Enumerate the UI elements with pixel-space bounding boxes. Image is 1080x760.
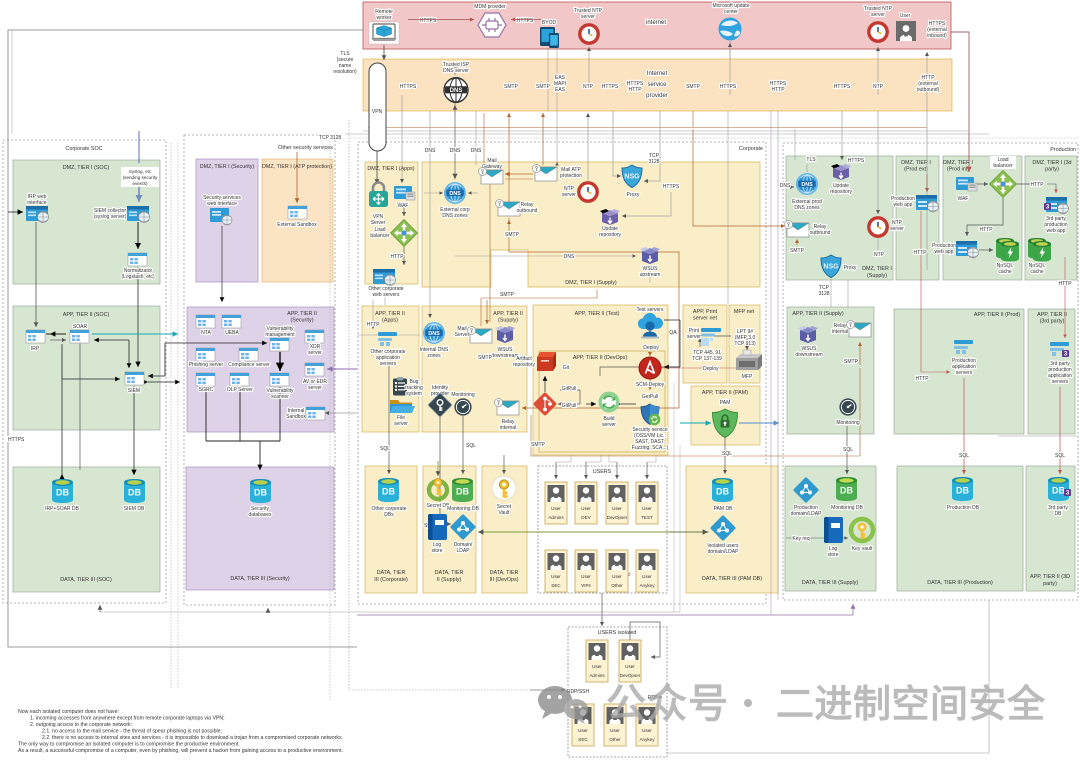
svg-text:GetPull: GetPull	[642, 394, 658, 400]
svg-text:service: service	[647, 82, 667, 88]
svg-text:(Supply): (Supply)	[867, 273, 887, 279]
svg-text:APP, TIER II (Supply): APP, TIER II (Supply)	[792, 311, 844, 317]
svg-text:Monitoring DB: Monitoring DB	[831, 505, 863, 511]
svg-text:(Prod int): (Prod int)	[947, 167, 969, 173]
svg-text:Now each isolated computer doe: Now each isolated computer does not have…	[18, 709, 119, 715]
svg-text:DNS zones: DNS zones	[794, 205, 820, 211]
svg-text:DMZ, TIER I (Security): DMZ, TIER I (Security)	[200, 164, 255, 170]
svg-text:HTTPS: HTTPS	[8, 437, 25, 443]
svg-text:HTTPS: HTTPS	[834, 84, 851, 90]
svg-text:VPN: VPN	[372, 109, 383, 115]
svg-text:Other: Other	[611, 583, 623, 588]
svg-text:protection: protection	[560, 173, 582, 179]
svg-text:SQL: SQL	[1055, 453, 1065, 459]
svg-text:Git: Git	[563, 365, 570, 371]
svg-text:PAM DB: PAM DB	[714, 506, 733, 512]
svg-text:APP, TIER II: APP, TIER II	[493, 311, 523, 317]
svg-text:TCP 3128: TCP 3128	[319, 135, 342, 141]
svg-text:External Sandbox: External Sandbox	[277, 222, 317, 228]
svg-text:3128: 3128	[818, 291, 829, 297]
svg-text:APP, TIER II: APP, TIER II	[1037, 312, 1067, 318]
svg-text:DATA, TIER III (Production): DATA, TIER III (Production)	[927, 580, 993, 586]
svg-text:server: server	[308, 350, 322, 356]
svg-text:Deploy: Deploy	[643, 345, 659, 351]
svg-text:party): party)	[1043, 581, 1057, 587]
svg-text:DNS: DNS	[450, 148, 461, 154]
svg-text:UEBA: UEBA	[225, 330, 239, 336]
svg-text:HTTPS: HTTPS	[420, 18, 437, 24]
svg-text:Syslog, etc: Syslog, etc	[129, 169, 152, 174]
svg-text:SMTP: SMTP	[500, 292, 515, 298]
svg-text:QA: QA	[669, 330, 677, 336]
svg-text:DATA, TIER III (SOC): DATA, TIER III (SOC)	[60, 577, 112, 583]
svg-text:SQL: SQL	[843, 447, 853, 453]
svg-text:worker: worker	[376, 15, 391, 21]
svg-text:downstream: downstream	[795, 352, 822, 358]
svg-text:Admins: Admins	[548, 515, 564, 520]
svg-text:DMZ, TIER I: DMZ, TIER I	[862, 266, 892, 272]
svg-text:HTTPS: HTTPS	[602, 84, 619, 90]
svg-text:DNS: DNS	[780, 183, 791, 189]
svg-text:VIPs: VIPs	[581, 583, 591, 588]
svg-text:User: User	[900, 13, 911, 19]
svg-text:Monitoring: Monitoring	[451, 392, 475, 398]
svg-text:Monitoring: Monitoring	[836, 420, 860, 426]
svg-text:DATA, TIER: DATA, TIER	[377, 570, 406, 576]
svg-text:LDAP: LDAP	[456, 548, 470, 554]
svg-text:HTTP: HTTP	[913, 250, 927, 256]
svg-text:Test servers: Test servers	[637, 307, 664, 313]
svg-text:III (DevOps): III (DevOps)	[489, 577, 518, 583]
svg-text:DMZ, TIER I (SOC): DMZ, TIER I (SOC)	[63, 165, 110, 171]
svg-text:SMTP: SMTP	[790, 248, 805, 254]
svg-text:domain/LDAP: domain/LDAP	[791, 511, 823, 517]
svg-text:Production DB: Production DB	[947, 505, 980, 511]
svg-text:NTP: NTP	[874, 252, 885, 258]
svg-text:repository: repository	[830, 189, 852, 195]
svg-text:User: User	[578, 728, 588, 733]
svg-text:DNS: DNS	[564, 254, 575, 260]
svg-text:Key vault: Key vault	[852, 546, 873, 552]
svg-text:DLP Server: DLP Server	[227, 387, 253, 393]
svg-text:User: User	[551, 506, 561, 511]
svg-text:SMTP: SMTP	[504, 84, 519, 90]
svg-text:Proxy: Proxy	[844, 265, 857, 271]
svg-text:SQL: SQL	[380, 446, 390, 452]
svg-text:HTTP: HTTP	[915, 376, 929, 382]
svg-text:HTTPS: HTTPS	[720, 84, 737, 90]
svg-text:server: server	[602, 422, 616, 428]
svg-text:USERS: USERS	[593, 469, 612, 475]
svg-text:User: User	[612, 574, 622, 579]
svg-text:DMZ, TIER I: DMZ, TIER I	[943, 160, 973, 166]
svg-text:APP, TIER II (Prod): APP, TIER II (Prod)	[974, 312, 1020, 318]
svg-text:SMTP: SMTP	[478, 355, 493, 361]
svg-text:(Apps): (Apps)	[382, 318, 398, 324]
svg-text:Compliance server: Compliance server	[228, 362, 270, 368]
svg-text:SIEM: SIEM	[128, 388, 140, 394]
svg-text:server: server	[308, 385, 322, 391]
svg-text:TCP 137-139: TCP 137-139	[692, 356, 722, 362]
svg-text:HTTPS: HTTPS	[663, 184, 680, 190]
svg-text:DATA, TIER: DATA, TIER	[435, 570, 464, 576]
svg-text:User: User	[612, 506, 622, 511]
svg-text:servers: servers	[1052, 379, 1069, 385]
svg-text:SQL: SQL	[959, 453, 969, 459]
svg-text:TCP 913): TCP 913)	[734, 341, 756, 347]
svg-text:resolution): resolution)	[333, 69, 357, 75]
svg-text:SMTP: SMTP	[531, 442, 546, 448]
svg-text:APP, TIER II (Test): APP, TIER II (Test)	[575, 311, 620, 317]
svg-text:SMTP: SMTP	[536, 84, 551, 90]
svg-text:APP, TIER II (3D: APP, TIER II (3D	[1030, 574, 1070, 580]
svg-text:(Supply): (Supply)	[498, 318, 518, 324]
svg-text:(sending security: (sending security	[123, 175, 158, 180]
svg-text:Server: Server	[371, 220, 386, 226]
svg-text:SMTP: SMTP	[844, 359, 859, 365]
svg-text:management: management	[265, 332, 295, 338]
svg-text:DATA, TIER: DATA, TIER	[490, 570, 519, 576]
svg-text:Admins: Admins	[589, 673, 605, 678]
svg-text:web app: web app	[894, 202, 913, 208]
svg-text:Other: Other	[609, 737, 621, 742]
svg-text:system: system	[406, 391, 422, 397]
svg-text:APP, TIER II (PAM): APP, TIER II (PAM)	[702, 390, 748, 396]
svg-text:repository: repository	[513, 362, 535, 368]
svg-text:HTTP: HTTP	[390, 254, 404, 260]
svg-text:GitPull: GitPull	[562, 386, 577, 392]
svg-text:BYOD: BYOD	[542, 20, 557, 26]
svg-text:2.1. no access to the mail ser: 2.1. no access to the mail service - the…	[42, 729, 222, 735]
svg-text:outbound): outbound)	[917, 87, 940, 93]
svg-text:DNS: DNS	[471, 148, 482, 154]
svg-text:web app: web app	[935, 249, 954, 255]
svg-text:APP, TIER II: APP, TIER II	[287, 311, 317, 317]
svg-text:cache: cache	[998, 269, 1012, 275]
svg-text:internet: internet	[646, 20, 666, 26]
svg-text:Deploy: Deploy	[703, 366, 719, 372]
svg-text:User: User	[625, 664, 635, 669]
svg-text:APP, Print: APP, Print	[693, 309, 718, 315]
svg-text:User: User	[592, 664, 602, 669]
svg-text:web app: web app	[1047, 228, 1066, 234]
svg-text:MDM provider: MDM provider	[474, 4, 506, 10]
svg-text:DNS server: DNS server	[443, 68, 469, 74]
svg-text:HTTPS: HTTPS	[517, 18, 534, 24]
svg-text:User: User	[610, 728, 620, 733]
svg-text:cache: cache	[1030, 269, 1044, 275]
svg-text:User: User	[581, 506, 591, 511]
svg-text:APP, TIER II: APP, TIER II	[375, 311, 405, 317]
svg-text:User: User	[642, 574, 652, 579]
svg-text:HTTP: HTTP	[1030, 182, 1044, 188]
svg-text:server: server	[394, 421, 408, 427]
svg-text:EAS: EAS	[555, 87, 566, 93]
svg-text:3128: 3128	[648, 159, 659, 165]
svg-text:HTTPS: HTTPS	[400, 84, 417, 90]
svg-text:repository: repository	[599, 232, 621, 238]
svg-text:APP, TIER II (SOC): APP, TIER II (SOC)	[63, 312, 110, 318]
svg-text:SEC: SEC	[578, 737, 588, 742]
svg-text:downstream: downstream	[491, 353, 518, 359]
svg-text:domain/LDAP: domain/LDAP	[708, 549, 740, 555]
svg-text:HTTPS: HTTPS	[848, 158, 865, 164]
svg-text:DMZ, TIER I (3d: DMZ, TIER I (3d	[1032, 160, 1071, 166]
svg-text:Corporate SOC: Corporate SOC	[65, 146, 102, 152]
svg-text:internal: internal	[500, 425, 516, 431]
svg-text:server: server	[562, 192, 576, 198]
svg-text:web servers: web servers	[373, 292, 400, 298]
svg-text:HTTP: HTTP	[771, 87, 785, 93]
svg-text:SMTP: SMTP	[686, 84, 701, 90]
svg-text:IRP: IRP	[31, 346, 40, 352]
svg-text:DMZ, TIER I (Apps): DMZ, TIER I (Apps)	[367, 166, 414, 172]
svg-text:Key req: Key req	[792, 536, 809, 542]
svg-text:USERS isolated: USERS isolated	[598, 630, 637, 636]
svg-text:TLS: TLS	[806, 157, 816, 163]
svg-text:1. incoming accesses from anyw: 1. incoming accesses from anywhere excep…	[30, 716, 225, 722]
svg-text:Other security services: Other security services	[278, 145, 333, 151]
svg-text:store: store	[431, 548, 442, 554]
svg-text:DATA, TIER III (Security): DATA, TIER III (Security)	[230, 576, 290, 582]
svg-text:NTP: NTP	[873, 84, 884, 90]
svg-text:Sandbox: Sandbox	[286, 414, 306, 420]
svg-text:DATA, TIER III (Supply): DATA, TIER III (Supply)	[802, 580, 859, 586]
svg-text:PAM: PAM	[720, 400, 730, 406]
svg-text:Monitoring DB: Monitoring DB	[447, 506, 479, 512]
svg-text:SGRC: SGRC	[199, 387, 214, 393]
svg-text:Anykey: Anykey	[639, 583, 655, 588]
svg-text:User: User	[581, 574, 591, 579]
svg-text:(Security): (Security)	[290, 318, 313, 324]
svg-text:Phishing server: Phishing server	[189, 362, 224, 368]
svg-text:Production: Production	[1050, 147, 1076, 153]
svg-text:(Prod ext): (Prod ext)	[904, 167, 928, 173]
svg-text:WAF: WAF	[958, 196, 969, 202]
svg-text:servers: servers	[956, 370, 973, 376]
svg-text:Proxy: Proxy	[627, 192, 640, 198]
svg-text:DATA, TIER III (PAM DB): DATA, TIER III (PAM DB)	[702, 576, 762, 582]
svg-text:User: User	[642, 506, 652, 511]
svg-text:2. outgoing access to the corp: 2. outgoing access to the corporate netw…	[30, 722, 132, 728]
svg-text:Internet: Internet	[647, 71, 668, 77]
svg-text:WAF: WAF	[398, 203, 409, 209]
svg-text:web interface: web interface	[207, 201, 237, 207]
svg-text:interface: interface	[27, 200, 46, 206]
svg-text:TEST: TEST	[641, 515, 653, 520]
svg-text:Server: Server	[455, 332, 470, 338]
svg-text:store: store	[827, 552, 838, 558]
svg-text:User: User	[642, 728, 652, 733]
svg-text:II (Supply): II (Supply)	[437, 577, 462, 583]
svg-text:Corporate: Corporate	[739, 146, 763, 152]
svg-text:upstream: upstream	[640, 272, 661, 278]
svg-text:outbound: outbound	[810, 230, 831, 236]
svg-text:SOAR: SOAR	[73, 324, 88, 330]
svg-text:NTP: NTP	[583, 84, 594, 90]
svg-text:2.2. there is no access to int: 2.2. there is no access to internal site…	[42, 735, 343, 741]
svg-text:IRP+SOAR DB: IRP+SOAR DB	[45, 506, 79, 512]
svg-text:server: server	[581, 14, 595, 20]
svg-text:HTTP: HTTP	[628, 87, 642, 93]
svg-text:SCM-Deploy: SCM-Deploy	[636, 382, 665, 388]
svg-text:party): party)	[1045, 167, 1059, 173]
svg-text:(Logstash, etc): (Logstash, etc)	[121, 274, 154, 280]
svg-text:events): events)	[132, 181, 148, 186]
svg-text:inbound): inbound)	[927, 33, 947, 39]
svg-text:DEV: DEV	[581, 515, 591, 520]
svg-text:DB: DB	[1055, 511, 1063, 517]
svg-text:balancer: balancer	[993, 163, 1013, 169]
svg-text:DNS zones: DNS zones	[442, 213, 468, 219]
svg-text:DNS: DNS	[425, 148, 436, 154]
svg-text:zones: zones	[427, 353, 441, 359]
svg-text:databases: databases	[248, 512, 272, 518]
svg-text:(3rd party): (3rd party)	[1040, 319, 1065, 325]
svg-text:SMTP: SMTP	[505, 232, 520, 238]
svg-text:DevOpser: DevOpser	[620, 673, 641, 678]
svg-text:scanner: scanner	[271, 394, 289, 400]
svg-text:HTTP: HTTP	[366, 322, 380, 328]
svg-text:SEC: SEC	[551, 583, 561, 588]
svg-text:Anykey: Anykey	[639, 737, 655, 742]
svg-text:III (Corporate): III (Corporate)	[374, 577, 408, 583]
svg-text:The only way to compromise an: The only way to compromise an isolated c…	[18, 742, 240, 748]
svg-text:GitPull: GitPull	[562, 403, 577, 409]
svg-text:balancer: balancer	[370, 233, 390, 239]
svg-text:As a result, a successful comp: As a result, a successful compromise of …	[18, 748, 343, 754]
svg-text:MFP net: MFP net	[734, 309, 755, 315]
svg-text:Fuzzing, SCA...): Fuzzing, SCA...)	[632, 445, 669, 451]
svg-text:server net: server net	[693, 316, 717, 322]
svg-text:servers: servers	[380, 361, 397, 367]
svg-text:MFP: MFP	[742, 374, 753, 380]
svg-text:(syslog server): (syslog server)	[94, 214, 127, 220]
svg-text:center: center	[724, 9, 738, 15]
svg-text:SQL: SQL	[466, 443, 476, 449]
svg-text:DBs: DBs	[384, 512, 394, 518]
svg-text:internal: internal	[832, 329, 848, 335]
svg-text:二进制空间安全: 二进制空间安全	[776, 683, 1046, 726]
svg-text:HTTP: HTTP	[979, 227, 993, 233]
svg-text:provider: provider	[646, 93, 668, 99]
svg-text:SIEM DB: SIEM DB	[124, 506, 145, 512]
svg-text:DMZ, TIER I: DMZ, TIER I	[901, 160, 931, 166]
svg-text:server: server	[687, 334, 701, 340]
svg-text:outbound: outbound	[517, 208, 538, 214]
svg-text:APP, TIER II (DevOps): APP, TIER II (DevOps)	[573, 355, 628, 361]
svg-text:DevOpser: DevOpser	[607, 515, 628, 520]
svg-text:DMZ, TIER I (Supply): DMZ, TIER I (Supply)	[565, 280, 617, 286]
svg-text:NTA: NTA	[201, 330, 211, 336]
svg-text:公众号: 公众号	[606, 682, 729, 726]
svg-text:server: server	[871, 12, 885, 18]
svg-text:User: User	[551, 574, 561, 579]
svg-text:SQL: SQL	[722, 451, 732, 457]
svg-text:HTTP: HTTP	[1058, 281, 1072, 287]
svg-text:server: server	[890, 226, 904, 232]
svg-text:Vault: Vault	[498, 510, 510, 516]
